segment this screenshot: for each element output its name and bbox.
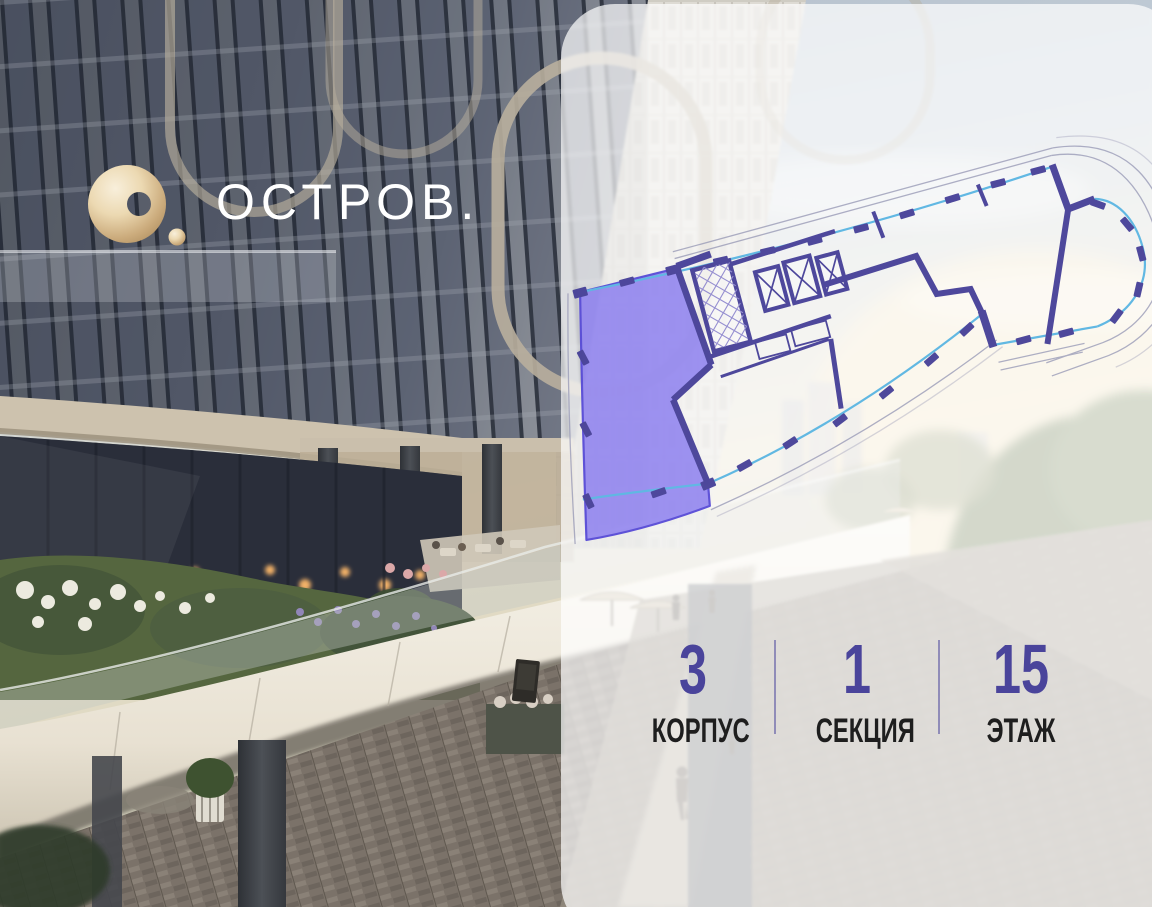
menu-blackboard xyxy=(512,659,540,703)
info-floor: 15 ЭТАЖ xyxy=(962,634,1080,751)
building-number: 3 xyxy=(650,634,735,704)
info-section: 1 СЕКЦИЯ xyxy=(798,634,916,751)
ostrov-ring-icon xyxy=(88,163,188,255)
building-label: КОРПУС xyxy=(651,712,734,751)
floor-number: 15 xyxy=(978,634,1063,704)
selection-info: 3 КОРПУС 1 СЕКЦИЯ 15 ЭТАЖ xyxy=(561,634,1152,751)
section-label: СЕКЦИЯ xyxy=(815,712,898,751)
floor-label: ЭТАЖ xyxy=(979,712,1062,751)
info-building: 3 КОРПУС xyxy=(634,634,752,751)
balcony-glass xyxy=(0,252,336,302)
divider xyxy=(774,640,776,734)
section-number: 1 xyxy=(814,634,899,704)
divider xyxy=(938,640,940,734)
logo[interactable]: ОСТРОВ. xyxy=(88,163,480,255)
page: ОСТРОВ. 3 КОРПУС 1 СЕКЦИЯ 15 ЭТАЖ xyxy=(0,0,1152,907)
logo-text: ОСТРОВ. xyxy=(216,175,480,230)
